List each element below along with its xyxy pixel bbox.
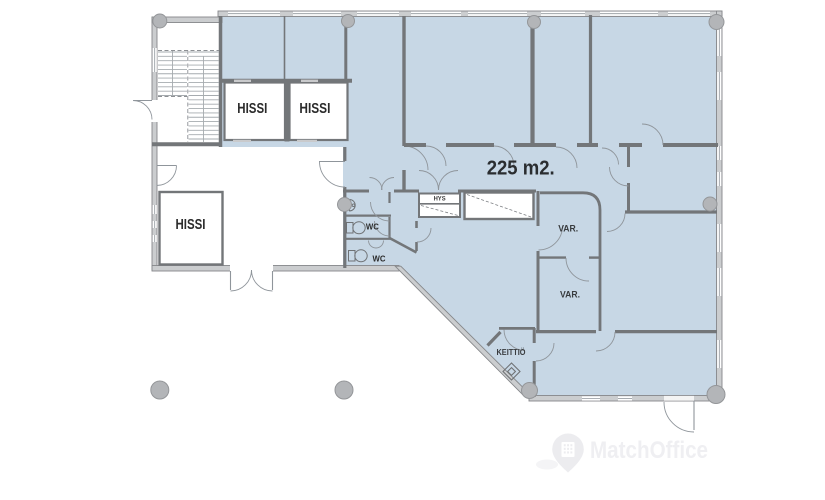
svg-text:HISSI: HISSI — [299, 101, 330, 117]
svg-text:WC: WC — [366, 221, 379, 231]
svg-text:WC: WC — [373, 253, 386, 263]
svg-text:225 m2.: 225 m2. — [487, 158, 555, 180]
svg-text:KEITTIÖ: KEITTIÖ — [497, 347, 526, 357]
svg-text:HISSI: HISSI — [237, 101, 267, 117]
svg-text:HYS: HYS — [434, 197, 446, 203]
svg-text:VAR.: VAR. — [558, 223, 578, 233]
svg-text:MatchOffice: MatchOffice — [590, 437, 708, 464]
svg-text:HISSI: HISSI — [176, 217, 206, 233]
svg-text:VAR.: VAR. — [560, 289, 580, 299]
